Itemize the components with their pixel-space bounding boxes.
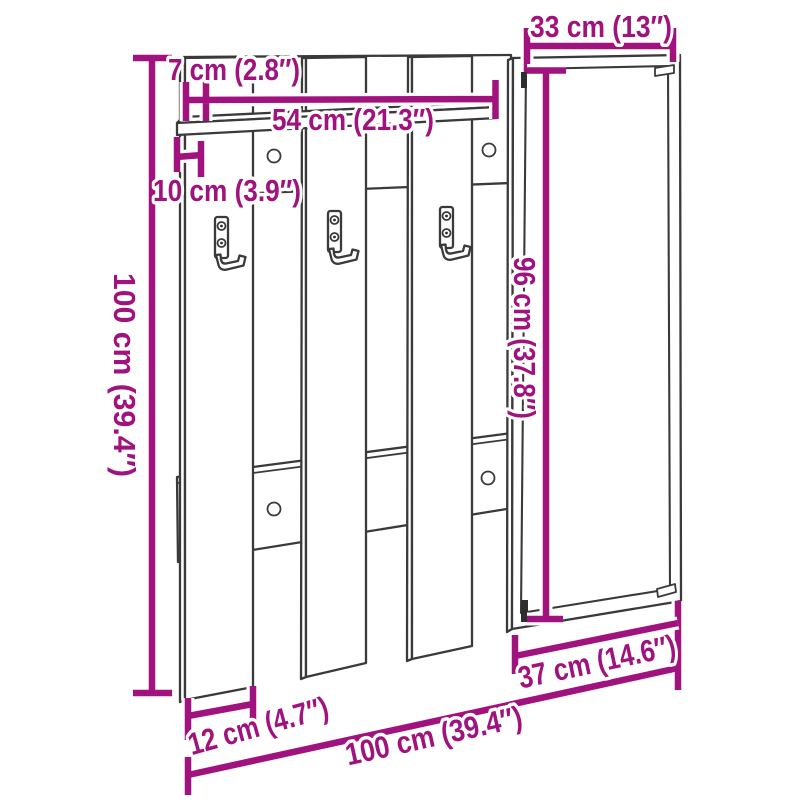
dim-label-top-width: 33 cm (13″) <box>530 9 672 44</box>
slat-3 <box>407 56 472 661</box>
mirror-clip-top <box>521 71 527 88</box>
mirror-bracket-top <box>655 65 674 76</box>
dim-label-total-height: 100 cm (39.4″) <box>107 273 142 477</box>
dim-label-shelf-width: 54 cm (21.3″) <box>272 102 434 137</box>
slat-2 <box>301 57 366 679</box>
dim-label-shelf-offset: 10 cm (3.9″) <box>153 173 301 208</box>
dimension-diagram-page: 33 cm (13″) 7 cm (2.8″) 54 cm (21.3″) 10… <box>0 0 800 800</box>
furniture-drawing <box>177 55 681 702</box>
coat-rack-with-mirror-diagram: 33 cm (13″) 7 cm (2.8″) 54 cm (21.3″) 10… <box>0 0 800 800</box>
dim-label-shelf-depth: 7 cm (2.8″) <box>168 52 300 87</box>
dim-label-total-width: 100 cm (39.4″) <box>342 699 525 772</box>
dim-label-mirror-height: 96 cm (37.8″) <box>507 257 542 419</box>
mirror-clip-bottom <box>521 600 528 622</box>
